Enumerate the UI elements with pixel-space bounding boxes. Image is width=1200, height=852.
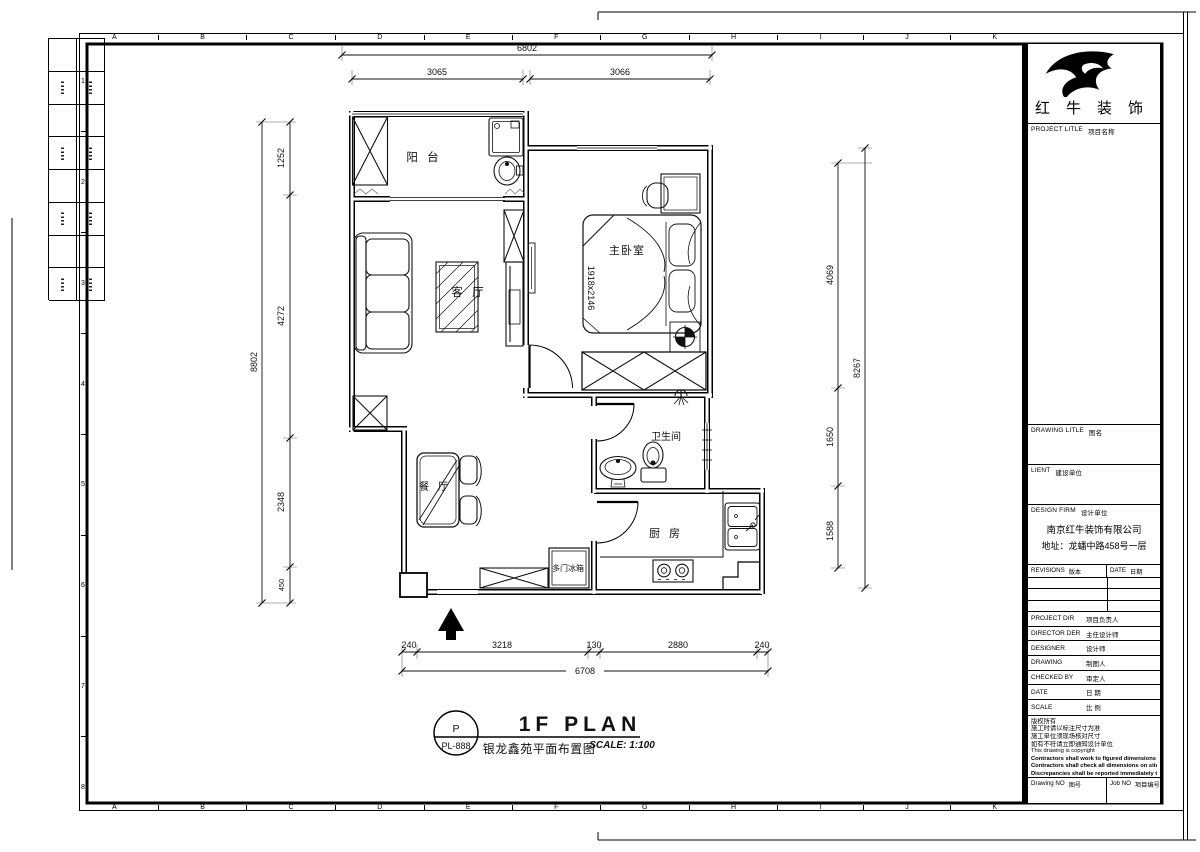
grid-ref: E (466, 34, 471, 41)
callout-number: PL-888 (441, 741, 470, 751)
dim-bottom-seg2: 3218 (492, 640, 512, 650)
grid-tick (950, 35, 951, 40)
kitchen-door (597, 502, 638, 543)
grid-ref: C (289, 34, 294, 41)
room-label-bedroom: 主卧室 (609, 243, 645, 257)
dim-left-seg3: 2348 (276, 492, 286, 512)
fold-strip-mark (61, 147, 64, 160)
date-label-cn: 日 期 (1086, 687, 1101, 697)
dim-bottom-seg5: 240 (754, 640, 769, 650)
dim-right-seg2: 1650 (825, 427, 835, 447)
client-label-cn: 建设单位 (1055, 467, 1082, 477)
bathroom-sink (600, 457, 636, 488)
grid-tick (777, 805, 778, 810)
checked-by-field: CHECKED BY审定人 (1028, 671, 1160, 686)
grid-tick (863, 805, 864, 810)
grid-letters-top: ABCDEFGHIJK (87, 32, 1022, 43)
grid-tick (81, 535, 86, 536)
fold-strip (48, 38, 105, 300)
grid-ref: G (642, 34, 647, 41)
brand-name: 红牛装饰 (1035, 97, 1159, 118)
project-label-cn: 项目名称 (1088, 126, 1115, 136)
grid-tick (81, 636, 86, 637)
fold-strip-cell (77, 137, 105, 170)
grid-tick (335, 805, 336, 810)
grid-ref: K (992, 34, 997, 41)
callout-letter: P (452, 723, 459, 735)
grid-letters-bottom: ABCDEFGHIJK (87, 802, 1022, 813)
fold-strip-cell (49, 203, 77, 236)
grid-tick (158, 35, 159, 40)
dim-bottom-overall: 6708 (575, 666, 595, 676)
toilet (641, 442, 666, 482)
dim-bottom-seg4: 2880 (668, 640, 688, 650)
scale-note: SCALE: 1:100 (589, 740, 655, 751)
plan-title: 1F PLAN (519, 713, 642, 736)
grid-tick (246, 805, 247, 810)
desk (661, 174, 700, 213)
plan-subtitle: 银龙鑫苑平面布置图 (483, 741, 596, 756)
dim-right-seg3: 1588 (825, 521, 835, 541)
revisions-label-en: REVISIONS (1031, 567, 1065, 577)
room-label-kitchen: 厨 房 (649, 527, 683, 540)
fold-strip-mark (89, 147, 92, 160)
design-firm-field: DESIGN FIRM设计单位 南京红牛装饰有限公司 地址：龙蟠中路458号一层 (1028, 505, 1160, 565)
grid-tick (512, 805, 513, 810)
furniture (354, 118, 760, 588)
room-label-bathroom: 卫生间 (651, 430, 681, 443)
dim-left-overall: 8802 (249, 352, 259, 372)
fold-strip-cell (77, 203, 105, 236)
fridge-label: 多门冰箱 (552, 563, 584, 573)
grid-ref: 4 (81, 381, 85, 388)
job-no-label-en: Job NO (1110, 780, 1131, 803)
grid-tick (512, 35, 513, 40)
fold-strip-mark (89, 278, 92, 291)
bathroom-door (597, 404, 634, 441)
grid-tick (158, 805, 159, 810)
revisions-table: REVISIONS版本 DATE日期 (1028, 565, 1160, 612)
grid-tick (424, 35, 425, 40)
fold-strip-mark (61, 278, 64, 291)
drawing-by-field: DRAWING制图人 (1028, 656, 1160, 671)
grid-tick (81, 333, 86, 334)
grid-tick (424, 805, 425, 810)
grid-ref: E (466, 804, 471, 811)
dim-top-seg1: 3065 (427, 67, 447, 77)
client-label-en: LIENT (1031, 467, 1050, 477)
drawing-title-label-en: DRAWING LITLE (1031, 427, 1084, 437)
bedroom-door (530, 345, 573, 388)
bed-size-label: 1918x2146 (586, 266, 596, 311)
designer-field: DESIGNER设计师 (1028, 641, 1160, 656)
drawing-by-label-cn: 制图人 (1086, 658, 1106, 668)
note-line: 施工单位须现场核对尺寸 (1031, 733, 1157, 741)
drawing-by-label-en: DRAWING (1028, 659, 1086, 666)
logo-area: 红牛装饰 (1028, 44, 1160, 124)
checked-by-label-en: CHECKED BY (1028, 674, 1086, 681)
note-line: 施工时请以标注尺寸为准 (1031, 725, 1157, 733)
dim-bottom-seg3: 130 (586, 640, 601, 650)
grid-ref: I (820, 804, 822, 811)
fold-strip-mark (89, 81, 92, 94)
grid-ref: 6 (81, 582, 85, 589)
note-line: 版权所有 (1031, 718, 1157, 726)
room-label-living: 客 厅 (451, 285, 486, 299)
scale-field: SCALE比 例 (1028, 700, 1160, 715)
grid-tick (81, 736, 86, 737)
dim-left-seg1: 1252 (276, 148, 286, 168)
fold-strip-cell (77, 39, 105, 72)
revisions-label-cn: 版本 (1069, 567, 1081, 577)
grid-tick (81, 434, 86, 435)
note-line: 如有不符请立即通知设计单位 (1031, 741, 1157, 749)
grid-ref: I (820, 34, 822, 41)
fold-strip-mark (89, 212, 92, 225)
designer-label-en: DESIGNER (1028, 645, 1086, 652)
grid-ref: D (377, 34, 382, 41)
note-line: Contractors shall check all dimensions o… (1031, 763, 1157, 771)
balcony-column (353, 117, 388, 185)
title-block: 红牛装饰 PROJECT LITLE项目名称 DRAWING LITLE图名 L… (1028, 44, 1162, 803)
drawing-no-label-cn: 图号 (1069, 780, 1081, 803)
fold-strip-cell (49, 268, 77, 301)
entry-arrow (438, 608, 464, 640)
red-bull-logo-icon (1028, 47, 1128, 97)
entry-cabinet (480, 568, 548, 588)
floor-plan-svg: 6802 3065 3066 8802 1252 4272 2348 450 8… (0, 0, 1200, 852)
director-field: DIRECTOR DER主任设计师 (1028, 627, 1160, 642)
number-fields: Drawing NO图号 Job NO项目编号 (1028, 778, 1160, 803)
fold-strip-cell (49, 137, 77, 170)
drawing-title-field: DRAWING LITLE图名 (1028, 425, 1160, 465)
dim-right-overall: 8267 (852, 358, 862, 378)
drawing-title-label-cn: 图名 (1089, 427, 1102, 437)
dim-right-seg1: 4069 (825, 265, 835, 285)
fold-strip-cell (77, 72, 105, 105)
grid-ref: F (554, 804, 558, 811)
date-field: DATE日 期 (1028, 685, 1160, 700)
grid-tick (600, 805, 601, 810)
fold-strip-cell (49, 236, 77, 269)
firm-address: 地址：龙蟠中路458号一层 (1028, 539, 1160, 552)
room-label-dining: 餐 厅 (419, 480, 451, 493)
hall-cabinet (506, 262, 523, 346)
grid-tick (335, 35, 336, 40)
designer-label-cn: 设计师 (1086, 643, 1106, 653)
scale-label-cn: 比 例 (1086, 702, 1101, 712)
drawing-no-label-en: Drawing NO (1031, 780, 1065, 803)
grid-ref: B (200, 804, 205, 811)
window-bathroom-right (702, 423, 712, 470)
fold-strip-cell (49, 39, 77, 72)
fold-strip-mark (61, 212, 64, 225)
fold-strip-mark (61, 81, 64, 94)
checked-by-label-cn: 审定人 (1086, 673, 1106, 683)
dim-left-seg2: 4272 (276, 306, 286, 326)
grid-ref: C (289, 804, 294, 811)
survey-target-symbol (670, 322, 700, 352)
dining-chair (460, 456, 481, 486)
project-dir-label-cn: 项目负责人 (1086, 614, 1119, 624)
living-right-column (504, 210, 524, 262)
grid-ref: B (200, 34, 205, 41)
dining-chair (460, 496, 481, 526)
revision-row (1028, 601, 1160, 612)
grid-tick (950, 805, 951, 810)
firm-label-cn: 设计单位 (1081, 507, 1108, 517)
grid-ref: J (905, 34, 909, 41)
grid-ref: A (112, 34, 117, 41)
drawing-sheet: 6802 3065 3066 8802 1252 4272 2348 450 8… (0, 0, 1200, 852)
grid-tick (689, 805, 690, 810)
fold-strip-cell (77, 236, 105, 269)
wall-foot (400, 573, 427, 597)
drawing-title-bar: P PL-888 1F PLAN 银龙鑫苑平面布置图 SCALE: 1:100 (434, 711, 655, 756)
grid-ref: 5 (81, 481, 85, 488)
fold-strip-cell (49, 105, 77, 138)
bed (583, 215, 701, 333)
fold-strip-cell (77, 170, 105, 203)
note-line: Contractors shall work to figured dimens… (1031, 756, 1157, 764)
project-title-field: PROJECT LITLE项目名称 (1028, 124, 1160, 425)
firm-name: 南京红牛装饰有限公司 (1028, 522, 1160, 536)
note-line: This drawing is copyright (1031, 748, 1157, 756)
scale-label-en: SCALE (1028, 704, 1086, 711)
living-left-column (353, 396, 387, 430)
fold-strip-cell (49, 72, 77, 105)
grid-tick (689, 35, 690, 40)
fold-strip-cell (49, 170, 77, 203)
grid-ref: F (554, 34, 558, 41)
client-field: LIENT建设单位 (1028, 465, 1160, 505)
wardrobe (582, 352, 706, 390)
kitchen-sink (725, 503, 760, 550)
doors (530, 345, 639, 543)
grid-ref: H (731, 804, 736, 811)
kitchen-corner-step (723, 562, 760, 590)
revision-row (1028, 578, 1160, 589)
balcony-sink (494, 157, 523, 185)
director-label-cn: 主任设计师 (1086, 629, 1119, 639)
grid-ref: 8 (81, 784, 85, 791)
room-label-balcony: 阳 台 (406, 150, 441, 164)
sofa (354, 233, 412, 353)
director-label-en: DIRECTOR DER (1028, 630, 1086, 637)
grid-ref: H (731, 34, 736, 41)
project-label-en: PROJECT LITLE (1031, 126, 1083, 136)
grid-ref: G (642, 804, 647, 811)
date-label-en: DATE (1028, 689, 1086, 696)
dim-bottom-seg1: 240 (401, 640, 416, 650)
fold-strip-cell (77, 268, 105, 301)
copyright-notes: 版权所有 施工时请以标注尺寸为准 施工单位须现场核对尺寸 如有不符请立即通知设计… (1028, 715, 1160, 778)
grid-ref: J (905, 804, 909, 811)
grid-tick (863, 35, 864, 40)
project-dir-label-en: PROJECT DIR (1028, 615, 1086, 622)
fold-strip-cell (77, 105, 105, 138)
grid-tick (246, 35, 247, 40)
stove (653, 560, 693, 582)
revision-row (1028, 589, 1160, 600)
grid-tick (600, 35, 601, 40)
dimensions: 6802 3065 3066 8802 1252 4272 2348 450 8… (249, 43, 872, 677)
date-col-label-cn: 日期 (1130, 567, 1142, 577)
firm-label-en: DESIGN FIRM (1031, 507, 1076, 517)
dim-left-seg4: 450 (277, 579, 286, 592)
date-col-label-en: DATE (1110, 567, 1126, 577)
job-no-label-cn: 项目编号 (1135, 780, 1160, 803)
grid-ref: D (377, 804, 382, 811)
washing-machine (489, 118, 523, 156)
grid-ref: K (992, 804, 997, 811)
dim-top-seg2: 3066 (610, 67, 630, 77)
grid-tick (777, 35, 778, 40)
grid-ref: A (112, 804, 117, 811)
grid-ref: 7 (81, 683, 85, 690)
dim-top-overall: 6802 (517, 43, 537, 53)
radiator (528, 243, 535, 293)
project-dir-field: PROJECT DIR项目负责人 (1028, 612, 1160, 627)
